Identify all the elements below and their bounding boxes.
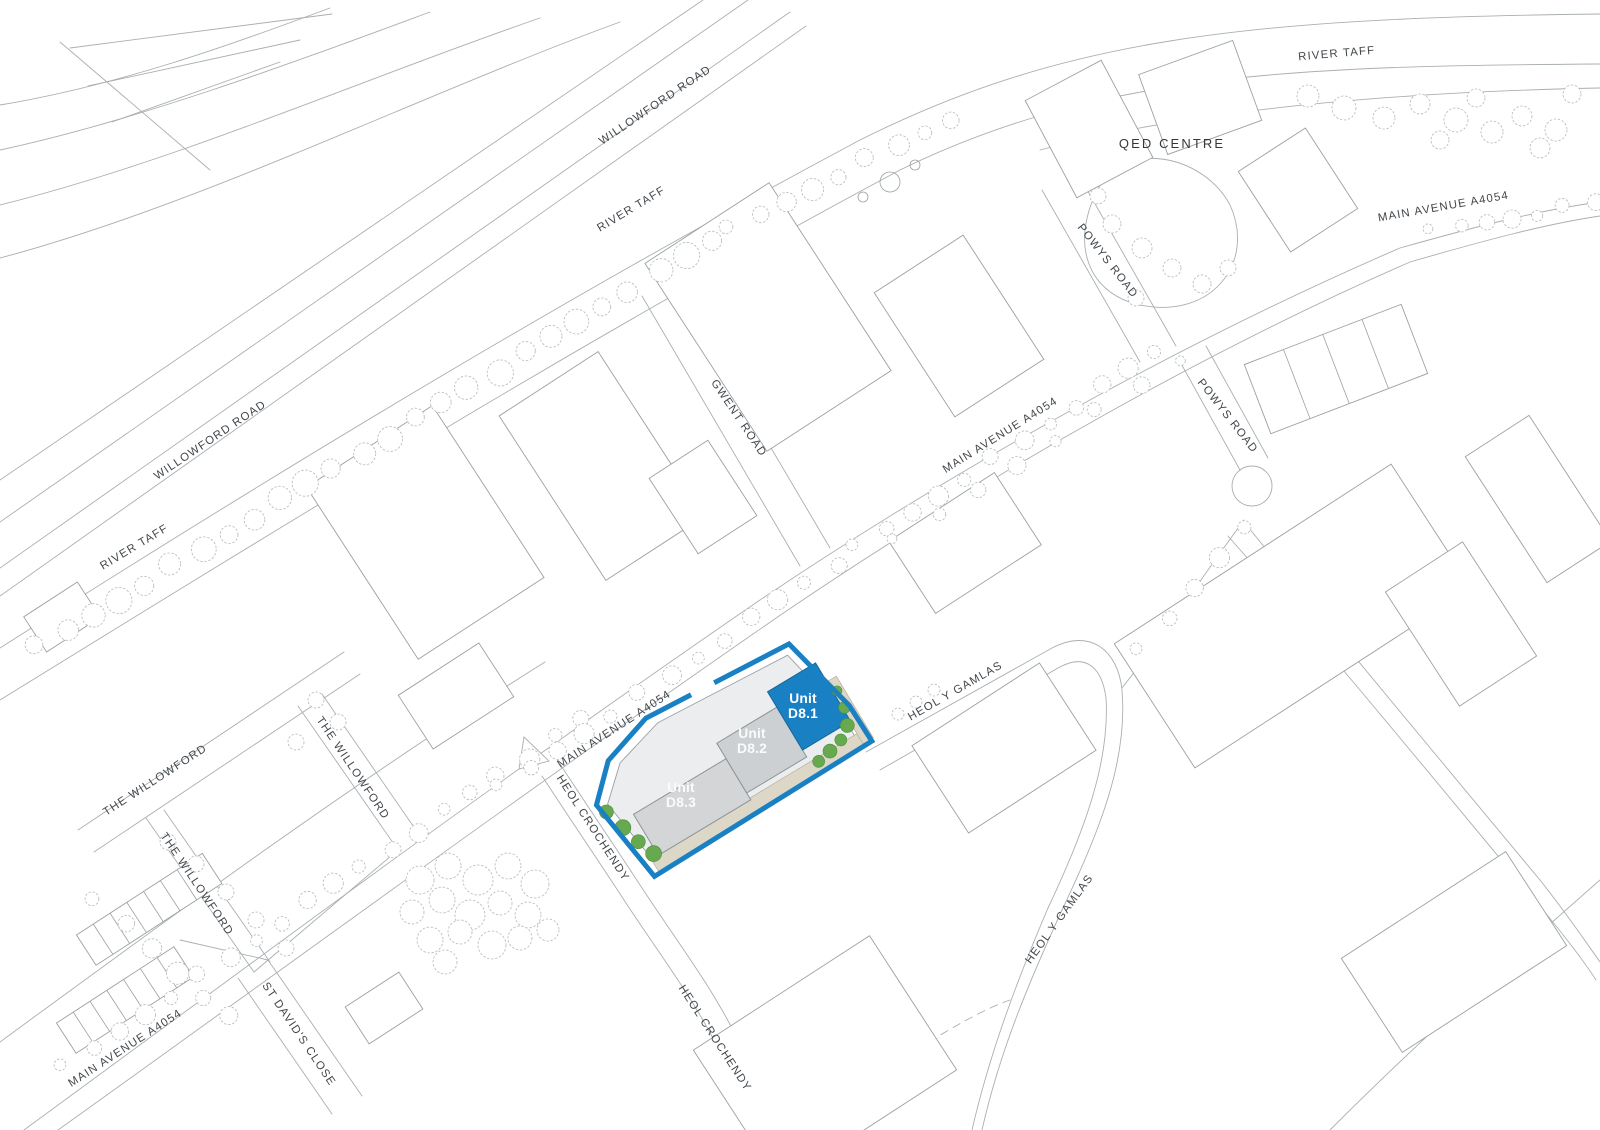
tree-icon [1423,224,1433,234]
unit-d8-2-label: UnitD8.2 [737,726,767,756]
tree-icon [490,779,502,791]
tree-icon [495,853,521,879]
tree-icon [777,192,796,211]
tree-icon [650,259,673,282]
tree-icon [220,526,238,544]
tree-icon [768,590,788,610]
tree-icon [1373,107,1395,129]
tree-icon [971,482,986,497]
tree-icon [82,604,105,627]
tree-icon [299,891,316,908]
tree-icon [1087,403,1101,417]
tree-icon [220,1007,238,1025]
tree-icon [478,931,506,959]
tree-icon [164,991,177,1004]
tree-icon [702,231,721,250]
tree-icon [435,853,461,879]
tree-icon [889,135,910,156]
tree-icon [1186,579,1203,596]
tree-icon [1045,418,1057,430]
tree-icon [892,708,904,720]
tree-icon [1162,611,1177,626]
site-d8 [570,623,877,884]
tree-icon [1090,188,1106,204]
tree-icon [87,1041,102,1056]
map-label-st-david-s-close: ST DAVID'S CLOSE [259,980,337,1088]
tree-icon [488,891,512,915]
tree-icon [288,734,304,750]
tree-icon [406,866,434,894]
tree-icon [1410,94,1430,114]
map-label-river-taff: RIVER TAFF [1298,45,1376,64]
map-label-heol-y-gamlas: HEOL Y GAMLAS [1023,872,1096,966]
tree-icon [1555,198,1569,212]
tree-icon [1503,210,1521,228]
tree-icon [1563,85,1581,103]
tree-icon [487,360,513,386]
tree-icon [537,919,559,941]
tree-icon [904,504,921,521]
tree-icon [417,927,443,953]
tree-icon [352,860,365,873]
tree-icon [752,206,769,223]
tree-icon [663,666,682,685]
tree-icon [1467,89,1485,107]
tree-icon [1297,85,1319,107]
tree-icon [629,684,645,700]
tree-icon [429,887,455,913]
map-label-river-taff: RIVER TAFF [595,184,668,234]
map-label-willowford-road: WILLOWFORD ROAD [152,398,269,482]
map-label-willowford-road: WILLOWFORD ROAD [597,63,714,147]
tree-icon [516,341,535,360]
tree-icon [1147,345,1160,358]
tree-icon [1530,138,1550,158]
tree-icon [797,576,810,589]
tree-icon [54,1059,66,1071]
tree-icon [1481,121,1503,143]
tree-icon [831,558,847,574]
tree-icon [933,508,946,521]
tree-icon [321,459,340,478]
tree-icon [540,325,562,347]
tree-icon [385,842,401,858]
tree-icon [455,376,478,399]
tree-icon [218,884,234,900]
tree-icon [1094,376,1111,393]
tree-icon [831,170,846,185]
tree-icon [1332,96,1356,120]
tree-icon [1431,131,1449,149]
tree-icon [1220,260,1236,276]
tree-icon [693,652,705,664]
tree-icon [593,298,611,316]
tree-icon [719,220,733,234]
tree-icon [308,692,324,708]
tree-icon [463,865,493,895]
tree-icon [928,486,948,506]
tree-icon [1532,210,1543,221]
tree-icon [189,966,205,982]
tree-icon [167,962,189,984]
tree-icon [1132,238,1152,258]
tree-icon [1015,431,1034,450]
tree-icon [1163,259,1181,277]
tree-icon [1050,436,1061,447]
tree-icon [135,576,154,595]
tree-icon [448,920,472,944]
tree-icon [106,588,132,614]
tree-icon [1176,356,1186,366]
tree-icon [674,242,700,268]
tree-icon [1444,108,1468,132]
tree-icon [1209,548,1229,568]
tree-icon [159,553,181,575]
tree-icon [58,620,79,641]
unit-d8-1-label: UnitD8.1 [788,691,818,721]
tree-icon [354,443,376,465]
tree-icon [118,915,135,932]
tree-icon [855,149,873,167]
tree-icon [431,392,452,413]
tree-icon [617,282,638,303]
tree-icon [943,112,960,129]
tree-icon [801,179,823,201]
tree-icon [1133,377,1150,394]
tree-icon [433,950,457,974]
tree-icon [142,939,161,958]
tree-icon [268,486,291,509]
tree-icon [292,470,318,496]
tree-icon [438,803,450,815]
tree-icon [378,427,403,452]
tree-icon [25,636,43,654]
tree-icon [407,408,425,426]
terrace-row [1244,304,1427,433]
tree-icon [958,473,971,486]
tree-icon [409,824,428,843]
tree-icon [1588,194,1600,211]
tree-icon [1130,643,1142,655]
tree-icon [718,634,733,649]
tree-icon [1238,521,1251,534]
map-label-qed-centre: QED CENTRE [1119,136,1225,151]
tree-icon [1118,358,1138,378]
tree-icon [918,126,932,140]
site-location-plan: WILLOWFORD ROADRIVER TAFFRIVER TAFFQED C… [0,0,1600,1130]
tree-icon [278,940,294,956]
tree-icon [251,935,263,947]
tree-icon [196,990,211,1005]
tree-icon [111,1023,128,1040]
tree-icon [1479,215,1494,230]
unit-d8-3-label: UnitD8.3 [666,780,696,810]
tree-icon [515,902,541,928]
map-label-the-willowford: THE WILLOWFORD [314,715,392,822]
tree-icon [244,510,265,531]
map-label-the-willowford: THE WILLOWFORD [101,742,209,818]
tree-icon [85,892,99,906]
tree-icon [275,917,290,932]
tree-icon [135,1005,155,1025]
tree-icon [248,912,264,928]
tree-icon [524,760,539,775]
tree-icon [508,926,532,950]
tree-icon [191,537,216,562]
tree-icon [564,309,589,334]
map-label-powys-road: POWYS ROAD [1195,377,1260,456]
site-entrance-gap [691,680,714,695]
tree-icon [887,534,897,544]
tree-icon [1193,275,1211,293]
tree-icon [1008,457,1026,475]
st-davids-close-edge [238,978,332,1114]
tree-icon [1103,215,1121,233]
tree-icon [549,729,562,742]
tree-icon [1069,401,1084,416]
tree-icon [846,539,858,551]
tree-icon [1545,119,1567,141]
tree-icon [323,873,343,893]
map-label-powys-road: POWYS ROAD [1075,222,1140,301]
map-canvas: WILLOWFORD ROADRIVER TAFFRIVER TAFFQED C… [0,0,1600,1130]
tree-icon [521,870,549,898]
tree-icon [222,948,241,967]
tree-icon [1456,219,1469,232]
tree-icon [743,608,760,625]
tree-icon [463,785,478,800]
tree-icon [400,900,424,924]
tree-icon [1512,106,1532,126]
